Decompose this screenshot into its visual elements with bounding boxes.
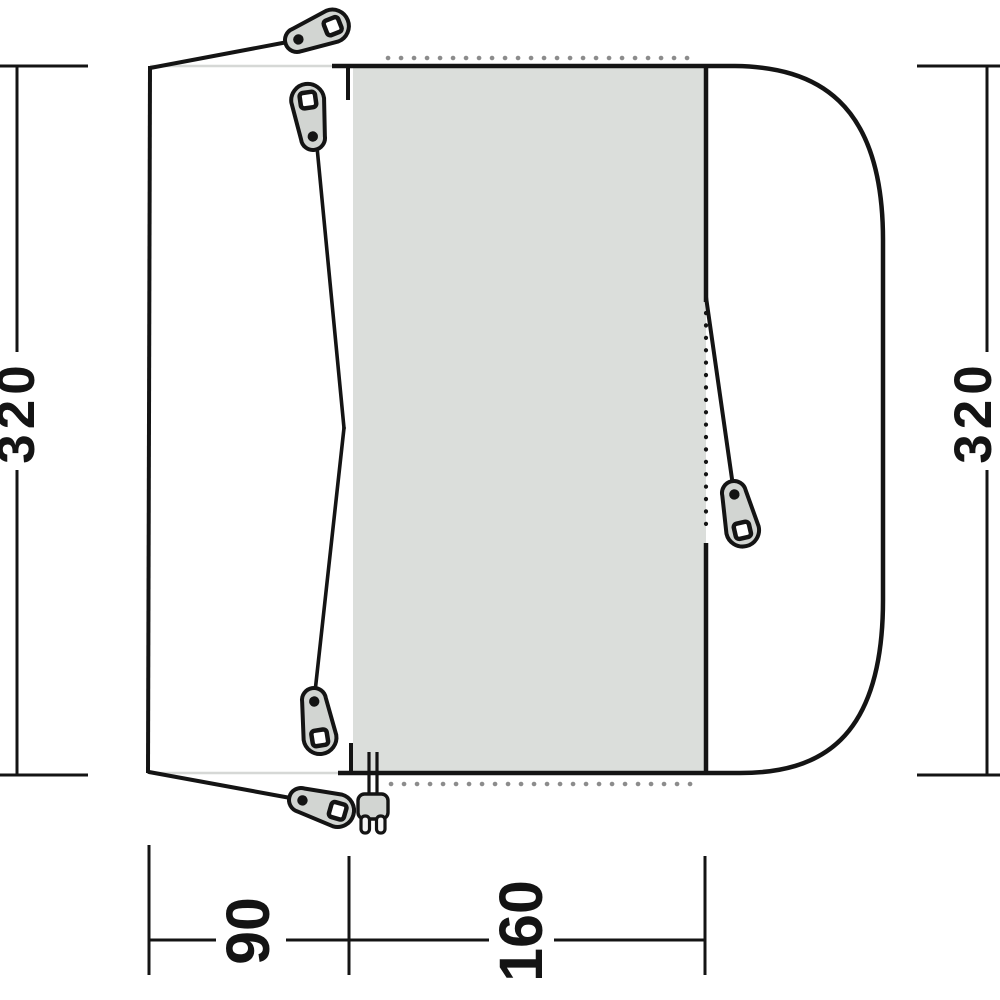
- guyline-tensioner-icon: [280, 5, 354, 60]
- guyline-tensioner-icon: [296, 686, 339, 757]
- guyline-tensioner-icon: [715, 478, 762, 550]
- plug-prong: [377, 816, 386, 833]
- inner-tent-floor-area: [353, 66, 706, 773]
- dimension-label-porch-width: 90: [214, 897, 282, 965]
- guyline-top-corner: [150, 41, 293, 68]
- dimension-label-left: 320: [0, 360, 46, 463]
- guyline-tensioner-icon: [289, 82, 331, 152]
- tent-front-wall: [148, 66, 150, 773]
- guyline-side-upper: [317, 147, 344, 428]
- tent-floorplan-diagram: 320 320 90 160: [0, 0, 1000, 1000]
- guyline-door: [706, 297, 733, 486]
- plug-prong: [361, 816, 370, 833]
- guyline-tensioner-icon: [285, 781, 358, 831]
- guyline-side-lower: [315, 428, 344, 692]
- guyline-bottom-corner: [149, 772, 296, 799]
- tent-floorplan-page: 320 320 90 160: [0, 0, 1000, 1000]
- dimension-label-right: 320: [944, 360, 1000, 463]
- dimension-label-inner-width: 160: [487, 880, 555, 982]
